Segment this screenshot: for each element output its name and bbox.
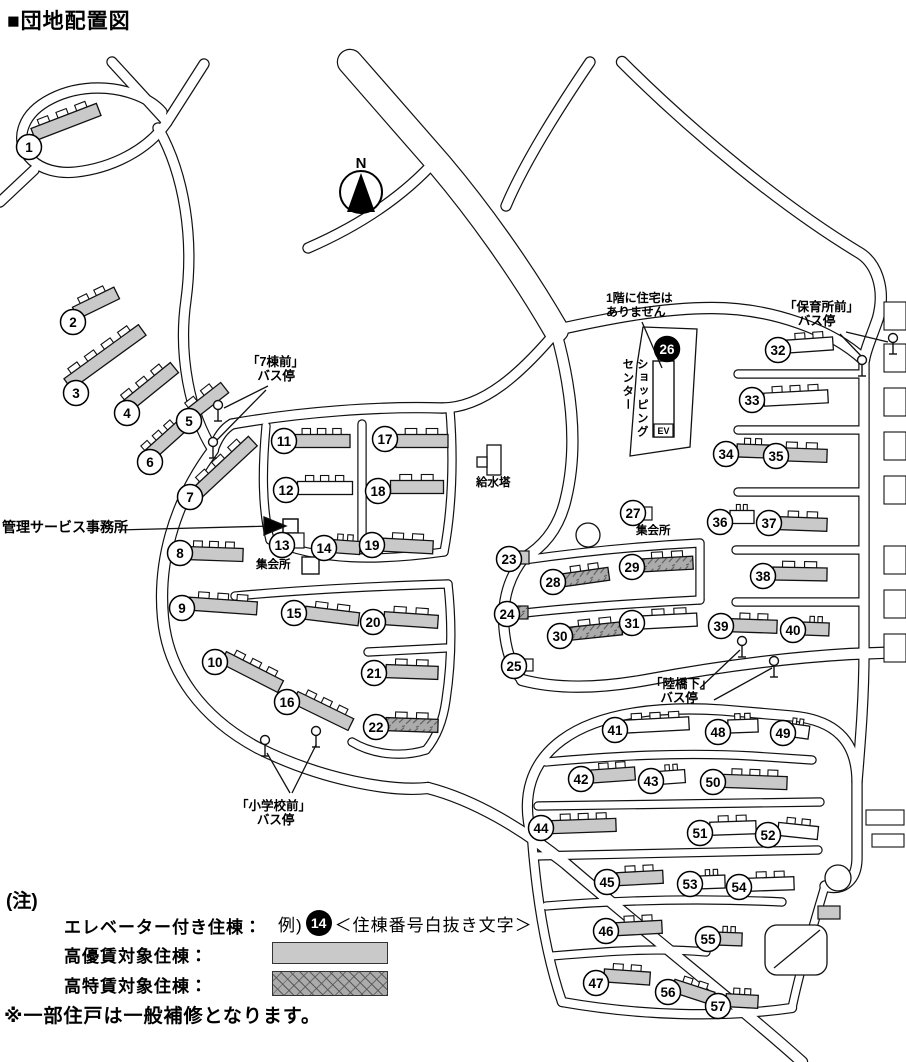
building-badge-34: 34 [714,442,739,467]
building-9 [189,591,258,615]
building-badge-32: 32 [766,338,791,363]
building-badge-20: 20 [361,610,386,635]
parking-lot [884,344,906,372]
no-first-floor-housing-note: 1階に住宅は ありません [606,292,673,320]
building-badge-30: 30 [548,624,573,649]
svg-text:29: 29 [624,560,639,575]
svg-text:8: 8 [176,546,184,561]
building-badge-39: 39 [709,614,734,639]
svg-text:25: 25 [506,659,522,674]
building-badge-38: 38 [751,564,776,589]
svg-text:37: 37 [761,516,776,531]
svg-text:13: 13 [274,538,290,553]
parking-lot [884,302,906,330]
building-37 [779,511,828,532]
parking-lot [884,476,906,504]
building-badge-50: 50 [701,770,726,795]
building-28 [561,561,609,586]
building-badge-17: 17 [373,427,398,452]
building-41 [622,711,689,733]
svg-text:27: 27 [625,506,640,521]
building-badge-1: 1 [17,135,42,160]
building-badge-36: 36 [708,510,733,535]
svg-text:12: 12 [278,483,293,498]
building-badge-5: 5 [177,409,202,434]
building-badge-15: 15 [282,601,307,626]
building-badge-41: 41 [603,718,628,743]
svg-text:23: 23 [501,552,517,567]
building-badge-12: 12 [274,478,299,503]
building-21 [386,659,439,680]
building-22 [386,712,439,733]
building-badge-24: 24 [495,602,520,627]
building-badge-51: 51 [688,821,713,846]
svg-text:57: 57 [710,999,725,1014]
building-18 [391,475,444,494]
building-44 [552,812,617,833]
building-badge-54: 54 [727,875,752,900]
svg-text:32: 32 [770,343,785,358]
bus-stop-icon [738,637,747,658]
parking-lot [884,432,906,460]
svg-text:40: 40 [785,623,800,638]
building-36 [730,505,754,524]
shopping-center-label: ショッピング センター [620,358,649,439]
svg-text:47: 47 [588,976,603,991]
meeting-hall-left-building [302,557,319,574]
svg-text:33: 33 [744,393,760,408]
parking-lot [884,634,906,662]
bus-stop-7-label: 「7棟前」 バス停 [247,355,304,384]
building-badge-42: 42 [569,767,594,792]
building-11 [294,429,350,448]
legend-koyuchin-label: 高優賃対象住棟： [64,942,208,967]
svg-text:54: 54 [731,880,747,895]
bus-stop-shogakko-label: 「小学校前」 バス停 [236,799,311,828]
svg-text:18: 18 [370,484,386,499]
svg-text:48: 48 [710,725,726,740]
parking-lot [884,546,906,574]
building-badge-27: 27 [621,501,646,526]
svg-text:11: 11 [277,434,292,449]
building-40 [803,616,830,636]
svg-text:21: 21 [366,666,382,681]
building-badge-10: 10 [203,650,228,675]
site-map-page: ■団地配置図 EV1234567891011121314151617181920… [0,0,906,1062]
svg-text:5: 5 [185,414,193,429]
parking-lot [866,810,904,825]
building-badge-43: 43 [639,769,664,794]
svg-text:55: 55 [700,932,716,947]
svg-text:22: 22 [368,720,383,735]
building-badge-31: 31 [620,611,645,636]
north-arrow: N [340,155,382,213]
building-badge-44: 44 [529,816,554,841]
building-badge-56: 56 [656,980,681,1005]
svg-text:28: 28 [545,575,561,590]
elevator-label: EV [657,426,669,436]
building-47 [604,963,651,985]
svg-text:35: 35 [768,449,784,464]
buildings [29,98,834,1009]
svg-text:45: 45 [599,875,615,890]
svg-text:56: 56 [660,985,676,1000]
svg-text:53: 53 [682,877,698,892]
svg-text:15: 15 [286,606,302,621]
building-33 [763,384,828,406]
svg-text:31: 31 [624,616,640,631]
building-16 [292,686,356,730]
building-30 [569,616,623,640]
bus-stop-rikkyoshita-label: 「陸橋下」 バス停 [650,677,713,706]
building-45 [616,864,663,885]
building-29 [642,550,693,572]
legend-example-suffix: ＜住棟番号白抜き文字＞ [335,911,533,936]
building-15 [304,600,360,625]
building-badges: 1234567891011121314151617181920212223242… [17,135,806,1019]
legend-elevator-example: 例) 14 ＜住棟番号白抜き文字＞ [278,910,533,936]
svg-text:36: 36 [712,515,728,530]
building-17 [396,429,448,448]
svg-text:4: 4 [123,406,131,421]
building-8 [185,540,244,561]
building-badge-2: 2 [61,310,86,335]
building-badge-55: 55 [696,927,721,952]
building-31 [642,607,697,629]
building-badge-8: 8 [168,541,193,566]
svg-text:39: 39 [713,619,728,634]
legend-note-heading: (注) [6,886,38,913]
svg-text:52: 52 [760,828,775,843]
building-badge-29: 29 [620,555,645,580]
svg-text:7: 7 [186,490,194,505]
svg-text:43: 43 [643,774,659,789]
pond [576,523,600,547]
svg-text:24: 24 [499,607,515,622]
svg-text:42: 42 [573,772,588,787]
cul-de-sac [825,865,851,891]
meeting-hall-left-label: 集会所 [256,559,291,572]
building-badge-23: 23 [497,547,522,572]
svg-text:46: 46 [598,924,614,939]
svg-text:6: 6 [146,455,154,470]
parking-lot [884,590,906,618]
building-badge-11: 11 [272,429,297,454]
svg-text:38: 38 [755,569,771,584]
building-20 [384,606,439,629]
meeting-hall-right-label: 集会所 [636,525,671,538]
legend-example-prefix: 例) [278,911,303,936]
svg-text:34: 34 [718,447,734,462]
building-badge-49: 49 [771,721,796,746]
north-label: N [356,155,367,172]
building-badge-16: 16 [275,690,300,715]
building-badge-19: 19 [360,533,385,558]
building-badge-40: 40 [781,618,806,643]
svg-text:26: 26 [659,342,675,357]
svg-text:44: 44 [533,821,549,836]
svg-text:17: 17 [377,432,392,447]
legend-repair-note: ※一部住戸は一般補修となります。 [4,1001,321,1028]
building-badge-47: 47 [584,971,609,996]
building-badge-52: 52 [756,823,781,848]
legend-kotokuchin-label: 高特賃対象住棟： [64,972,208,997]
water-tower-label: 給水塔 [476,477,511,490]
building-badge-4: 4 [115,401,140,426]
parking-lot [872,834,904,847]
bus-stop-icon [312,727,321,748]
site-map: EV12345678910111213141516171819202122232… [0,0,906,1062]
building-12 [298,476,353,495]
water-tower-icon [477,457,487,467]
svg-text:16: 16 [279,695,295,710]
building-badge-3: 3 [64,381,89,406]
svg-text:2: 2 [69,315,77,330]
building-badge-18: 18 [366,479,391,504]
building-badge-46: 46 [594,919,619,944]
building-badge-14: 14 [312,536,337,561]
building-badge-13: 13 [270,533,295,558]
building-badge-9: 9 [170,596,195,621]
svg-text:51: 51 [692,826,708,841]
building-badge-48: 48 [706,720,731,745]
building-badge-22: 22 [364,715,389,740]
building-52 [777,816,819,839]
svg-text:30: 30 [552,629,567,644]
building-badge-7: 7 [178,485,203,510]
building-badge-57: 57 [706,994,731,1019]
building-51 [710,815,757,836]
bus-stop-hoikusho-label: 「保育所前」 バス停 [784,300,859,329]
building-badge-37: 37 [757,511,782,536]
svg-text:49: 49 [775,726,790,741]
building-38 [773,561,827,581]
building-10 [221,646,287,692]
building-badge-6: 6 [138,450,163,475]
small-structure [818,906,840,919]
svg-text:1: 1 [25,140,33,155]
building-badge-35: 35 [764,444,789,469]
building-badge-21: 21 [362,661,387,686]
water-tower-icon [487,445,501,475]
svg-text:10: 10 [207,655,222,670]
parking-lot [884,388,906,416]
building-39 [731,613,778,634]
svg-text:41: 41 [607,723,623,738]
svg-text:9: 9 [178,601,186,616]
svg-text:3: 3 [72,386,80,401]
building-42 [590,761,635,783]
svg-text:20: 20 [365,615,380,630]
legend-elevator-label: エレベーター付き住棟： [64,913,262,938]
svg-text:14: 14 [316,541,332,556]
building-badge-45: 45 [595,870,620,895]
legend-elevator-badge: 14 [306,910,332,936]
legend-hatch-swatch [272,971,388,996]
building-54 [748,871,795,892]
building-badge-28: 28 [541,570,566,595]
building-badge-53: 53 [678,872,703,897]
bus-stop-icon [214,401,223,422]
svg-text:50: 50 [705,775,720,790]
building-badge-33: 33 [740,388,765,413]
building-badge-25: 25 [502,654,527,679]
building-badge-26: 26 [655,337,680,362]
building-19 [383,532,434,554]
management-office-label: 管理サービス事務所 [2,519,128,535]
building-50 [723,768,788,789]
svg-text:19: 19 [364,538,379,553]
legend-gray-swatch [272,942,388,964]
